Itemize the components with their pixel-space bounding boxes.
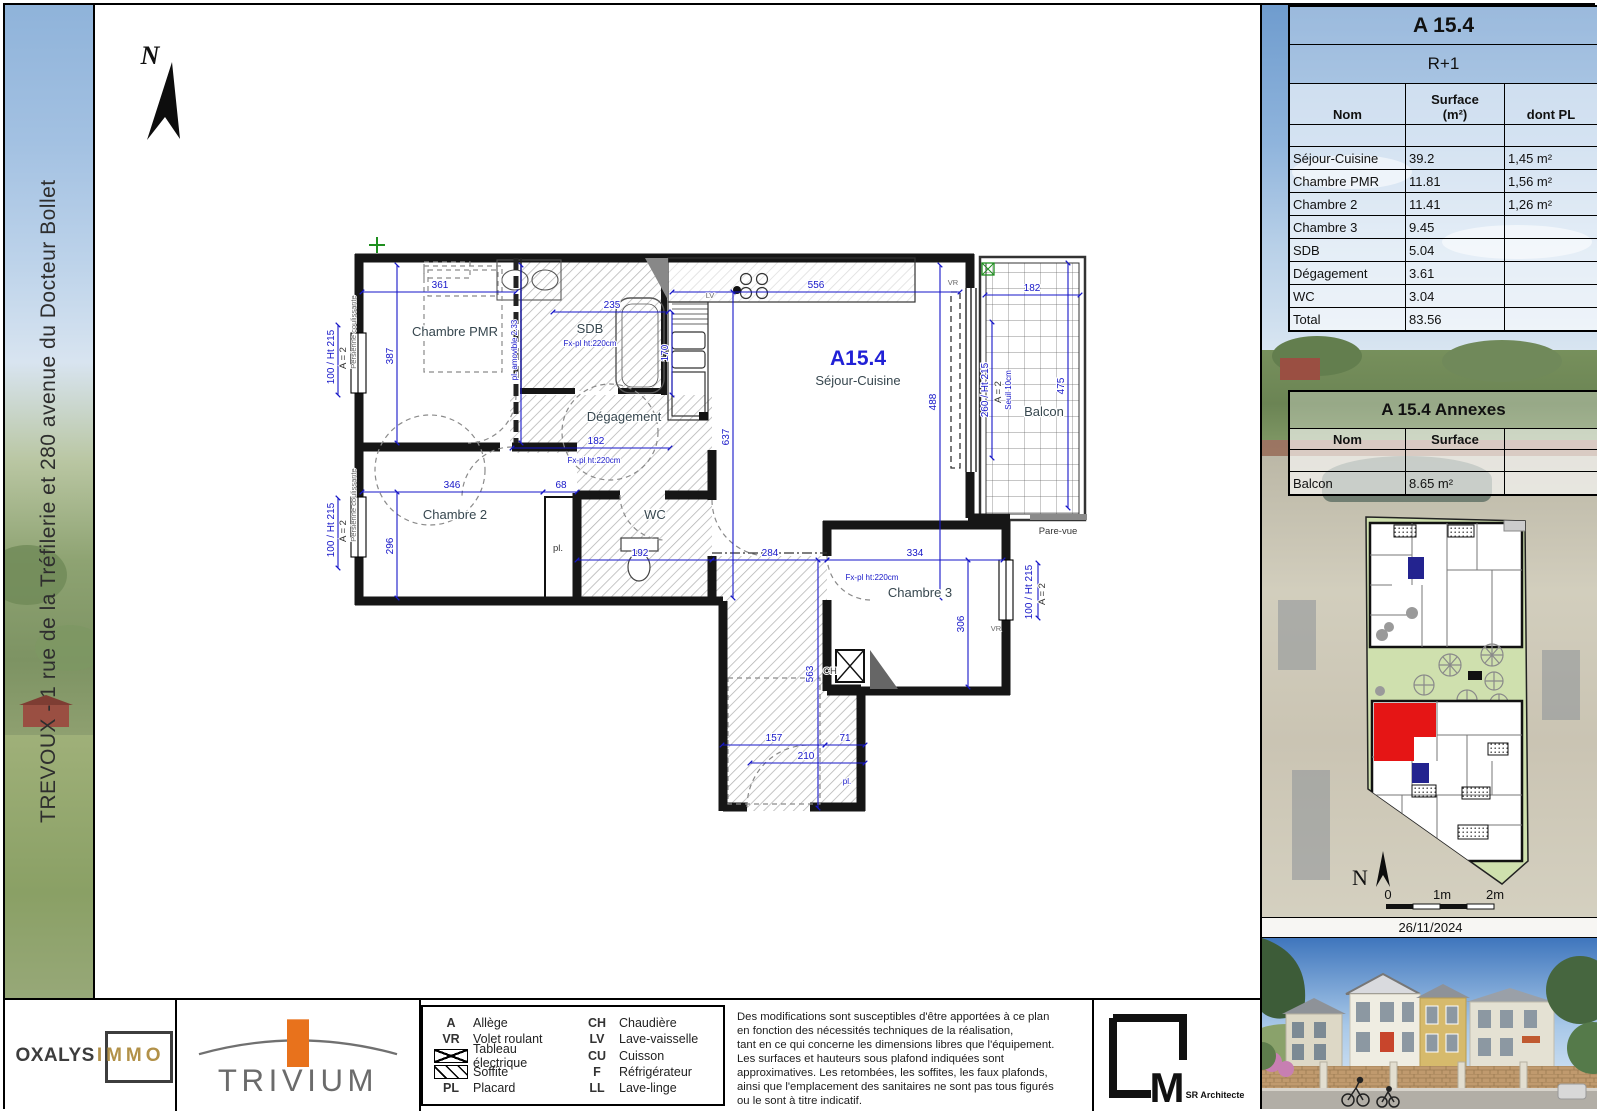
table-cell: Dégagement [1290,262,1406,284]
dimension-label: Fx-pl ht:220cm [846,573,899,582]
site-key-plan: N 0 1m 2m [1262,495,1597,917]
table-row: Total83.56 [1290,308,1597,330]
table-cell: Balcon [1290,472,1406,494]
scale-bar [1386,904,1494,909]
dimension-label: 488 [928,393,939,410]
van-shape [1558,1084,1586,1099]
legend-label: Lave-vaisselle [619,1032,698,1046]
table-row: SDB5.04 [1290,239,1597,262]
dimension-label: LV [706,291,715,300]
spacer-row [1290,450,1597,472]
dimension-label: 475 [1056,377,1067,394]
oxalys-text: OXALYS [15,1045,94,1066]
dimension-label: CH [823,666,837,677]
unit-table-rows: Séjour-Cuisine39.21,45 m²Chambre PMR11.8… [1290,147,1597,330]
table-cell [1505,472,1597,494]
table-cell: 83.56 [1406,308,1505,330]
trivium-logo-box: TRIVIUM [177,1000,421,1111]
dimension-label: pl. amovible 2.33 [510,319,519,380]
dimension-label: 192 [632,548,649,559]
dimension-label: 387 [385,347,396,364]
legend-item: LLLave-linge [575,1080,717,1096]
legend-box: AAllègeVRVolet roulantTableau électrique… [421,1005,725,1106]
legend-item: Soffite [429,1065,571,1081]
disclaimer-text: Des modifications sont susceptibles d'êt… [737,1010,1075,1108]
annex-title: A 15.4 Annexes [1290,392,1597,429]
boiler [836,650,898,689]
room-label: WC [644,507,666,522]
legend-right-column: CHChaudièreLVLave-vaisselleCUCuissonFRéf… [575,1015,717,1096]
table-cell: 8.65 m² [1406,472,1505,494]
dimension-label: pl. [553,543,563,554]
dimension-label: pl. [843,777,851,786]
legend-label: Soffite [473,1065,508,1079]
legend-item: FRéfrigérateur [575,1064,717,1080]
room-label: Chambre PMR [412,324,498,339]
table-cell [1505,262,1597,284]
legend-label: Allège [473,1016,508,1030]
dimension-label: 71 [839,733,851,744]
drainer-lines [672,304,708,324]
architect-subtext: SR Architecte [1186,1090,1245,1100]
table-cell: 39.2 [1406,147,1505,169]
table-cell [1505,239,1597,261]
building-render-photo [1262,938,1597,1109]
key-north-arrow [1376,851,1390,887]
room-label: Dégagement [587,409,662,424]
annex-col-surface: Surface [1406,429,1505,449]
plan-date: 26/11/2024 [1262,917,1597,938]
dimension-label: 100 / Ht 215 [326,329,337,384]
dimension-label: 637 [721,428,732,445]
unit-surface-table: A 15.4 R+1 Nom Surface(m²) dont PL Séjou… [1288,5,1597,332]
sliding-bay-window [951,288,978,472]
legend-label: Cuisson [619,1049,664,1063]
table-row: Balcon8.65 m² [1290,472,1597,494]
dimension-label: 182 [588,436,605,447]
floor-plan-svg: Chambre PMRSDBFx-pl ht:220cmDégagementCh… [95,5,1260,998]
table-cell: 1,45 m² [1505,147,1597,169]
table-cell: Chambre 2 [1290,193,1406,215]
dimension-label: Pare-vue [1039,526,1078,537]
dimension-label: A = 2 [338,347,349,369]
table-row: Chambre 39.45 [1290,216,1597,239]
legend-item: AAllège [429,1015,571,1031]
dimension-label: 284 [762,548,779,559]
dimension-label: 235 [604,300,621,311]
table-cell: 5.04 [1406,239,1505,261]
unit-id: A 15.4 [1290,7,1597,45]
room-label: A15.4 [830,347,886,370]
table-cell: Total [1290,308,1406,330]
legend-label: Réfrigérateur [619,1065,692,1079]
table-row: Chambre PMR11.811,56 m² [1290,170,1597,193]
volet-roulant-box [951,292,960,468]
dimension-label: 68 [555,480,567,491]
dimension-label: 210 [798,751,815,762]
col-header-dont-pl: dont PL [1505,84,1597,124]
legend-label: Lave-linge [619,1081,677,1095]
spacer-row [1290,125,1597,147]
floor-plan-area: Chambre PMRSDBFx-pl ht:220cmDégagementCh… [95,5,1260,998]
tree-blob [1442,340,1562,382]
floor-level: R+1 [1290,45,1597,84]
dimension-label: 296 [385,537,396,554]
table-cell: Chambre PMR [1290,170,1406,192]
table-cell: 11.81 [1406,170,1505,192]
dimension-label: 260 / Ht 215 [980,362,991,417]
dimension-label: Fx-pl ht:220cm [568,456,621,465]
dimension-label: 100 / Ht 215 [326,502,337,557]
legend-item: PLPlacard [429,1080,571,1096]
electrical-panel-icon [434,1049,468,1063]
annex-table-rows: Balcon8.65 m² [1290,472,1597,494]
dimension-label: 563 [805,665,816,682]
legend-item: LVLave-vaisselle [575,1031,717,1047]
sink-bowl [672,351,705,368]
col-header-nom: Nom [1290,84,1406,124]
key-north-label: N [1352,865,1368,890]
left-photo-strip: TREVOUX - 1 rue de la Tréfilerie et 280 … [5,5,95,998]
room-label: Balcon [1024,404,1064,419]
oxalys-logo: OXALYSIMMO [15,1045,164,1067]
scale-1m: 1m [1433,887,1451,902]
house-roof-shape [1280,358,1320,380]
trivium-logo: TRIVIUM [188,1010,408,1102]
table-cell: WC [1290,285,1406,307]
dimension-label: A = 2 [1037,583,1048,605]
table-cell: 1,56 m² [1505,170,1597,192]
col-header-surface: Surface(m²) [1406,84,1505,124]
tree-icon [1439,654,1461,676]
table-cell: Chambre 3 [1290,216,1406,238]
table-row: Séjour-Cuisine39.21,45 m² [1290,147,1597,170]
table-row: Dégagement3.61 [1290,262,1597,285]
tree-icon [1485,672,1503,690]
oxalys-logo-box: OXALYSIMMO [5,1000,177,1111]
table-cell: 1,26 m² [1505,193,1597,215]
table-cell: 3.61 [1406,262,1505,284]
dimension-label: A = 2 [993,381,1004,403]
dimension-label: 306 [956,615,967,632]
project-address-title: TREVOUX - 1 rue de la Tréfilerie et 280 … [5,5,93,998]
dimension-label: N [140,41,161,70]
tree-icon [1414,675,1434,695]
table-cell [1505,308,1597,330]
scale-2m: 2m [1486,887,1504,902]
dimension-label: Fx-pl ht:220cm [564,339,617,348]
dimension-label: Persienne coulissante [349,295,358,368]
tree-icon [1481,644,1503,666]
dimension-label: Seuil 10cm [1004,370,1013,410]
legend-item: CHChaudière [575,1015,717,1031]
table-cell: Séjour-Cuisine [1290,147,1406,169]
cooktop-knob [733,286,741,294]
table-row: WC3.04 [1290,285,1597,308]
dimension-label: Persienne coulissante [349,468,358,541]
legend-label: Placard [473,1081,515,1095]
architect-logo: M SR Architecte [1103,1008,1263,1106]
legend-item: CUCuisson [575,1047,717,1063]
dimension-label: 346 [444,480,461,491]
plan-labels: Chambre PMRSDBFx-pl ht:220cmDégagementCh… [140,41,1078,786]
legend-label: Chaudière [619,1016,677,1030]
soffit-icon [434,1065,468,1079]
dimension-label: 157 [766,733,783,744]
stairwell-top [1408,557,1424,579]
stairwell-bottom [1412,763,1429,783]
title-block: OXALYSIMMO TRIVIUM AAllègeVRVolet roulan… [5,998,1260,1109]
dimension-label: 170 [660,344,671,361]
table-cell [1505,216,1597,238]
table-cell: 11.41 [1406,193,1505,215]
oxalys-immo-text: IMMO [95,1045,165,1066]
dimension-label: 100 / Ht 215 [1024,564,1035,619]
table-cell [1505,285,1597,307]
divider-line [1092,1000,1094,1111]
dimension-label: 556 [808,280,825,291]
legend-item: Tableau électrique [429,1047,571,1065]
annex-table: A 15.4 Annexes Nom Surface Balcon8.65 m² [1288,390,1597,496]
plan-sheet: TREVOUX - 1 rue de la Tréfilerie et 280 … [0,0,1600,1114]
sink-bowl [672,332,705,349]
table-row: Chambre 211.411,26 m² [1290,193,1597,216]
table-cell: SDB [1290,239,1406,261]
room-label: Chambre 3 [888,585,952,600]
north-arrow [147,62,180,140]
table-cell: 3.04 [1406,285,1505,307]
legend-left-column: AAllègeVRVolet roulantTableau électrique… [429,1015,571,1096]
room-label: Chambre 2 [423,507,487,522]
dimension-label: VR [948,278,959,287]
dimension-label: 334 [907,548,924,559]
room-label: SDB [577,321,604,336]
dimension-label: VR [991,624,1002,633]
svg-text:TRIVIUM: TRIVIUM [218,1062,378,1097]
dimension-label: A = 2 [338,520,349,542]
architect-m: M [1150,1064,1185,1106]
table-cell: 9.45 [1406,216,1505,238]
annex-col-nom: Nom [1290,429,1406,449]
room-label: Séjour-Cuisine [815,373,900,388]
scale-0: 0 [1384,887,1391,902]
dimension-label: 182 [1024,283,1041,294]
right-panel: A 15.4 R+1 Nom Surface(m²) dont PL Séjou… [1260,5,1597,1109]
dimension-label: 361 [432,280,449,291]
